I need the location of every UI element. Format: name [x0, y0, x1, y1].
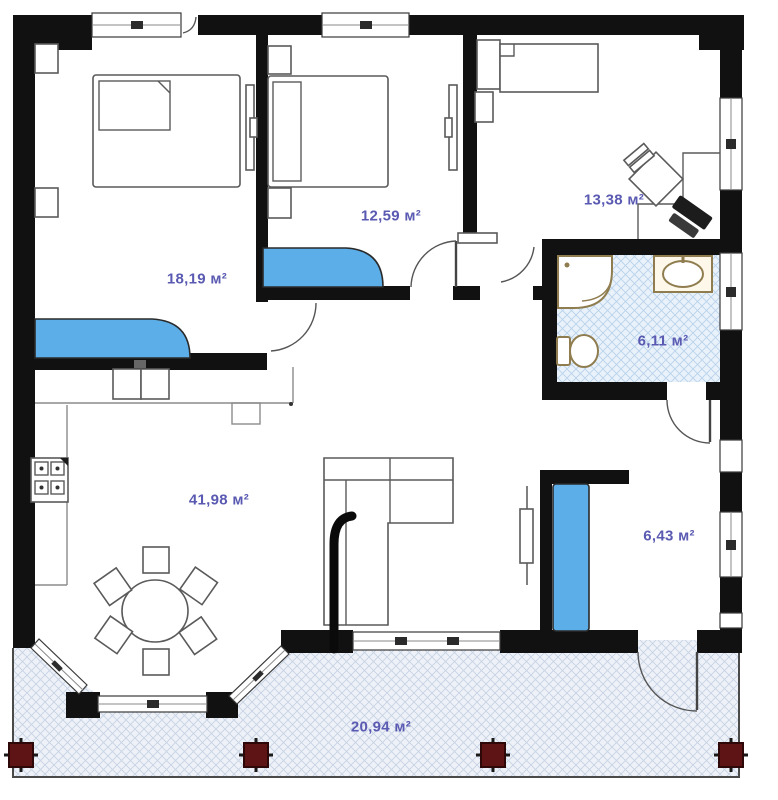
room-area-label-bedroom-middle: 12,59 м² — [361, 208, 421, 225]
bay-window-center — [98, 696, 207, 712]
radiator — [520, 486, 533, 585]
bedroom2-furniture — [263, 46, 457, 287]
floor-plan: 18,19 м² 12,59 м² 13,38 м² 6,11 м² 41,98… — [0, 0, 778, 800]
appliance — [232, 403, 260, 424]
nightstand — [268, 46, 291, 74]
room-area-label-bathroom: 6,11 м² — [638, 333, 689, 350]
toilet — [557, 335, 598, 367]
door-arc-office — [501, 247, 534, 282]
window-vent-arc — [183, 17, 196, 33]
door-arc-bedroom2 — [411, 241, 456, 287]
chair — [143, 649, 169, 675]
nightstand — [475, 92, 493, 122]
window-top-2 — [322, 13, 409, 37]
wardrobe-blue-1 — [35, 319, 190, 358]
office-furniture — [475, 40, 720, 241]
bed-1 — [93, 75, 240, 187]
headboard — [477, 40, 500, 89]
nightstand — [35, 44, 58, 73]
bathroom-sink — [663, 261, 703, 287]
column — [714, 738, 748, 772]
wardrobe-blue-2 — [263, 248, 383, 287]
column — [4, 738, 38, 772]
corner-sofa — [324, 458, 453, 625]
room-area-label-living: 41,98 м² — [189, 492, 249, 509]
column — [239, 738, 273, 772]
chair — [143, 547, 169, 573]
bay-post — [66, 692, 100, 718]
wall-office-divider — [463, 35, 477, 235]
wardrobe-blue-entry — [553, 484, 589, 631]
door-arc-bathroom — [667, 400, 710, 443]
room-area-label-bedroom-left: 18,19 м² — [167, 271, 227, 288]
column — [476, 738, 510, 772]
nightstand — [268, 188, 291, 218]
stove — [31, 458, 68, 502]
room-area-label-terrace: 20,94 м² — [351, 719, 411, 736]
door-leaf-office — [458, 233, 497, 243]
bedroom1-furniture — [35, 44, 257, 358]
nightstand — [35, 188, 58, 217]
bed-2 — [268, 76, 388, 187]
door-arc-bedroom1 — [271, 303, 316, 351]
window-bottom-living — [353, 632, 500, 650]
window-right-bathroom — [720, 253, 742, 330]
window-right-office — [720, 98, 742, 190]
room-area-label-entry: 6,43 м² — [643, 528, 695, 545]
room-area-label-office: 13,38 м² — [584, 192, 644, 209]
window-top-1 — [92, 13, 196, 37]
floor-plan-svg — [0, 0, 778, 800]
computer — [664, 195, 713, 241]
